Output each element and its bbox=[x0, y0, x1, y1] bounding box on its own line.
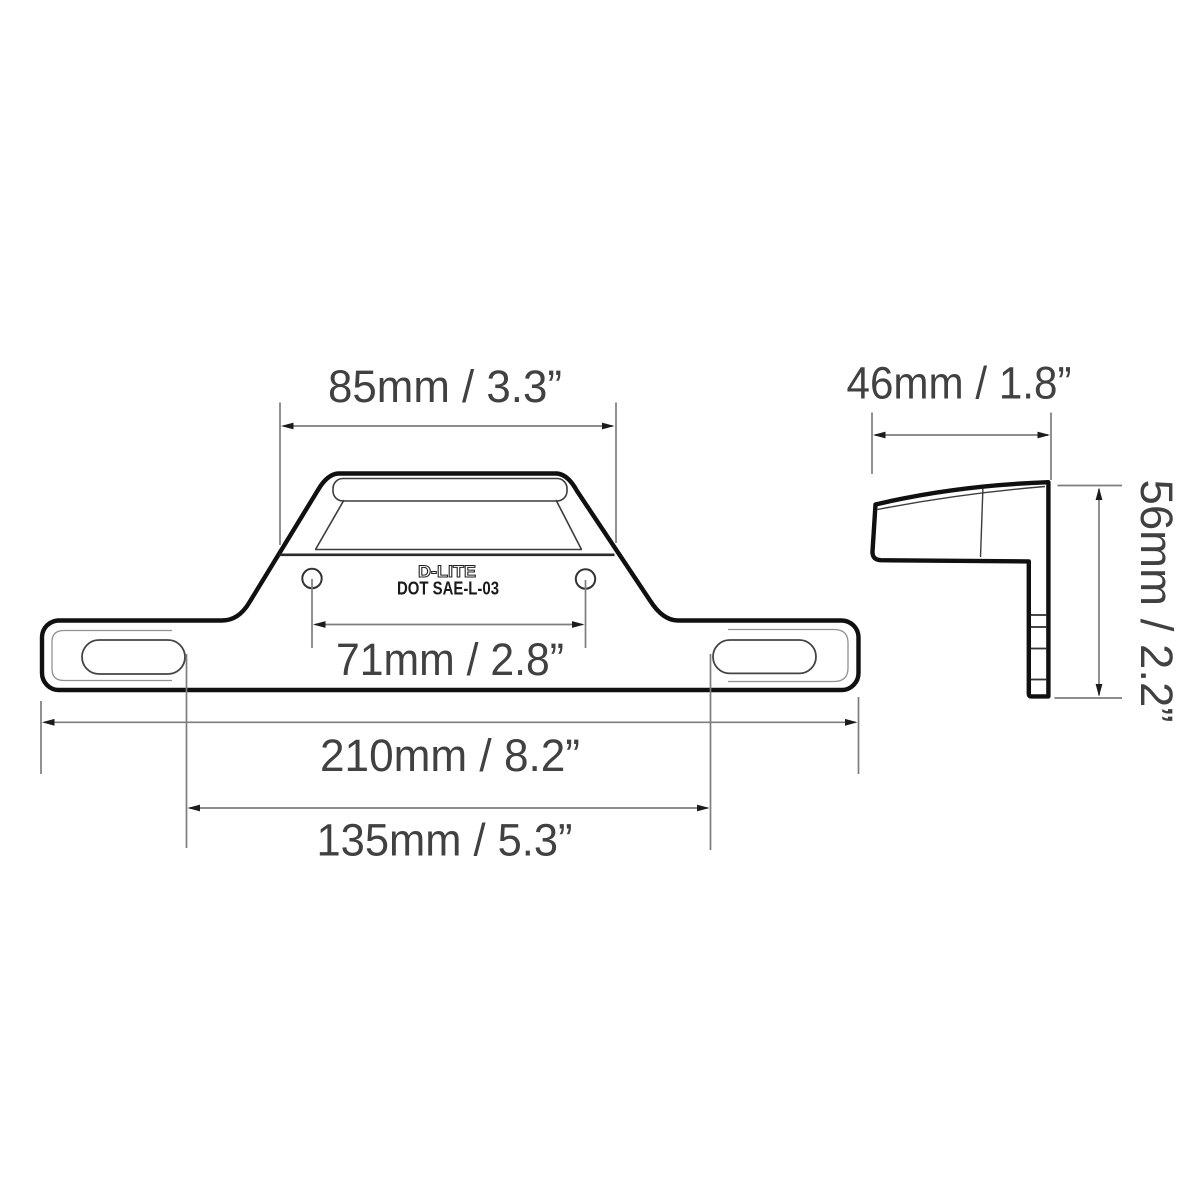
svg-text:85mm / 3.3”: 85mm / 3.3” bbox=[328, 361, 562, 412]
svg-text:210mm / 8.2”: 210mm / 8.2” bbox=[320, 730, 580, 781]
svg-text:71mm / 2.8”: 71mm / 2.8” bbox=[336, 634, 564, 685]
svg-text:46mm / 1.8”: 46mm / 1.8” bbox=[847, 358, 1072, 409]
svg-text:DOT SAE-L-03: DOT SAE-L-03 bbox=[397, 579, 499, 599]
svg-text:135mm / 5.3”: 135mm / 5.3” bbox=[317, 815, 573, 866]
svg-text:56mm / 2.2”: 56mm / 2.2” bbox=[1131, 480, 1182, 723]
